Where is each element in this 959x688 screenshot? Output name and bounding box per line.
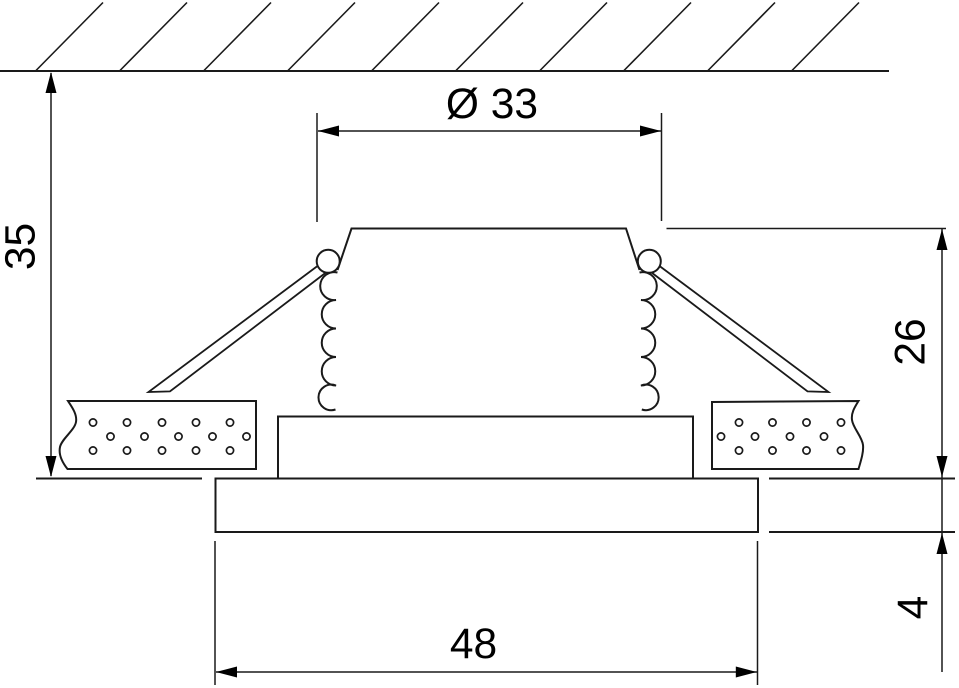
svg-text:4: 4 [890,596,937,620]
svg-text:35: 35 [0,223,45,270]
svg-text:Ø 33: Ø 33 [446,81,538,128]
svg-text:48: 48 [450,621,497,668]
svg-text:26: 26 [888,318,935,365]
